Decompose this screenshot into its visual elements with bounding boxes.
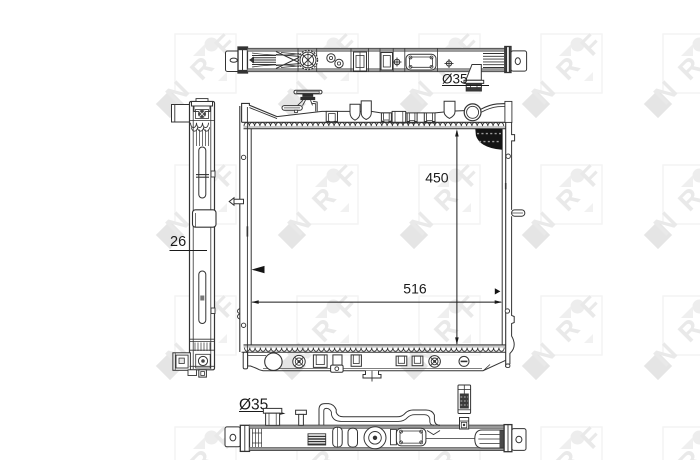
svg-text:26: 26 xyxy=(170,234,186,250)
svg-text:Ø35: Ø35 xyxy=(442,72,468,87)
svg-text:450: 450 xyxy=(425,169,449,185)
svg-text:516: 516 xyxy=(403,281,427,297)
